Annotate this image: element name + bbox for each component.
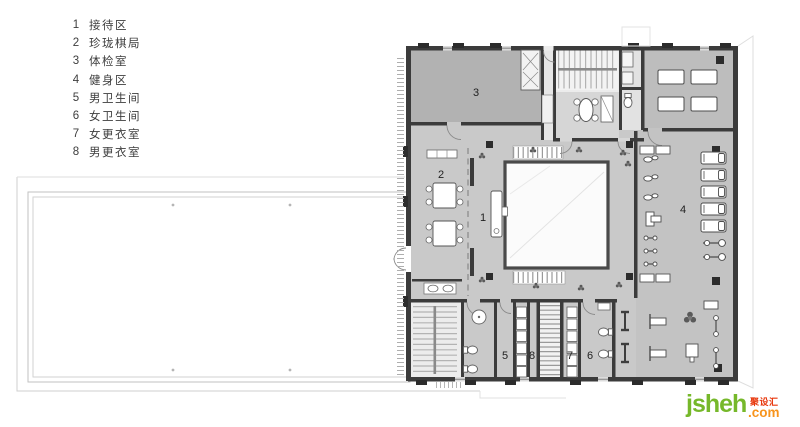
column [626, 273, 633, 280]
wall-gym-west [634, 131, 638, 298]
fixture [622, 52, 633, 67]
treadmill-icon [701, 186, 726, 198]
table [433, 183, 456, 208]
floor-plan-drawing: 3 2 1 4 5 8 7 6 [0, 0, 800, 427]
sink-icon [443, 285, 453, 292]
door-gap [648, 128, 662, 132]
watermark-logo: jsheh 聚设汇 .com [686, 394, 794, 424]
locker-icon [567, 307, 577, 318]
room-label-4: 4 [680, 204, 686, 216]
chair-icon [426, 237, 432, 243]
door-gap [447, 122, 461, 126]
pilaster [718, 380, 729, 385]
toilet-icon [599, 328, 613, 336]
bench [691, 70, 717, 84]
terrace-marker [172, 369, 175, 372]
door-gap [560, 138, 572, 142]
pilaster [685, 380, 696, 385]
toilet-icon [624, 94, 632, 108]
bench [640, 274, 654, 282]
closet [521, 50, 540, 90]
atrium [505, 146, 608, 284]
vanity-counter [598, 303, 610, 310]
stair-rail [558, 68, 617, 71]
column [716, 56, 724, 64]
door-gap [467, 299, 480, 303]
pilaster [570, 380, 581, 385]
fixture [622, 72, 633, 84]
multigym-icon [651, 216, 661, 222]
bench [658, 70, 684, 84]
room-label-1: 1 [480, 212, 486, 224]
machine-icon [704, 301, 718, 309]
reception-desk [491, 191, 502, 237]
locker-bank-floor [538, 302, 562, 378]
pilaster [465, 380, 476, 385]
wall-service-mid [619, 87, 644, 90]
lounge-table-group [574, 96, 613, 122]
terrace-marker [289, 204, 292, 207]
chair-icon [592, 99, 598, 105]
wall-fin-north [470, 158, 474, 186]
locker-icon [567, 331, 577, 342]
chair-icon [426, 224, 432, 230]
pilaster [505, 380, 516, 385]
chair-icon [457, 237, 463, 243]
staircase-top [556, 49, 618, 90]
pilaster [720, 43, 731, 48]
treadmill-icon [701, 203, 726, 215]
floor-plan-page: 1接待区 2珍珑棋局 3体检室 4健身区 5男卫生间 6女卫生间 7女更衣室 8… [0, 0, 800, 427]
wall-stair-west [553, 46, 556, 140]
wall-washroom-east [494, 299, 497, 381]
vestibule-niche [542, 95, 553, 123]
pilaster [632, 380, 643, 385]
pilaster [490, 43, 501, 48]
wall-room7-east [578, 299, 581, 381]
wall-room8-east [527, 299, 530, 381]
door-gap [631, 110, 634, 122]
column [712, 277, 720, 285]
stair-rail [434, 306, 437, 374]
chair-icon [426, 199, 432, 205]
bench [656, 146, 670, 154]
brand-text: jsheh [686, 390, 746, 419]
room-label-7: 7 [567, 350, 573, 362]
room-label-8: 8 [529, 350, 535, 362]
chair-icon [574, 115, 580, 121]
door-gap [583, 299, 595, 303]
entrance-gap [544, 46, 554, 51]
wall-right [733, 46, 738, 381]
desk-return [502, 207, 508, 216]
pilaster [416, 380, 427, 385]
projection-line [738, 36, 753, 388]
room-label-6: 6 [587, 350, 593, 362]
locker-icon [567, 319, 577, 330]
locker-icon [517, 367, 527, 378]
sink-icon [428, 285, 438, 292]
brand-tld-text: .com [748, 405, 780, 420]
locker-icon [517, 319, 527, 330]
column [626, 141, 633, 148]
pilaster [418, 43, 429, 48]
table [433, 221, 456, 246]
sideboard [427, 150, 457, 158]
bench [691, 97, 717, 111]
staircase-bottom-left [434, 306, 437, 374]
column [486, 273, 493, 280]
wall-room3-south [408, 122, 543, 126]
pilaster [403, 196, 408, 207]
treadmill-icon [701, 152, 726, 164]
locker-icon [567, 367, 577, 378]
wall-lockerbank-east [560, 299, 564, 381]
bench [656, 274, 670, 282]
wall-left [406, 46, 411, 381]
wall-room6-east [612, 299, 616, 381]
treadmill-icon [701, 220, 726, 232]
wall-fin-south [470, 248, 474, 276]
chair-icon [426, 186, 432, 192]
wall-lockerbank-west [537, 299, 541, 381]
chair-icon [457, 224, 463, 230]
pilaster [453, 43, 464, 48]
round-table [579, 99, 593, 122]
locker-icon [517, 343, 527, 354]
pilaster [403, 146, 408, 157]
bench [640, 146, 654, 154]
terrace-inner [33, 197, 407, 377]
shower-drain [478, 316, 480, 318]
room3-closet [521, 50, 540, 90]
wall-room5-east [513, 299, 516, 381]
locker-icon [517, 307, 527, 318]
room-label-5: 5 [502, 350, 508, 362]
toilet-icon [599, 350, 613, 358]
toilet-icon [464, 346, 478, 354]
pilaster [662, 43, 673, 48]
wall-washcounter [412, 279, 462, 282]
treadmill-icon [701, 169, 726, 181]
bench [658, 97, 684, 111]
chair-icon [592, 115, 598, 121]
terrace-marker [172, 204, 175, 207]
chair-icon [574, 99, 580, 105]
column [486, 141, 493, 148]
door-gap [618, 138, 630, 142]
room-label-2: 2 [438, 169, 444, 181]
terrace-marker [289, 369, 292, 372]
wall-room3-east [541, 46, 544, 140]
chair-icon [457, 199, 463, 205]
locker-icon [517, 331, 527, 342]
locker-icon [517, 355, 527, 366]
pilaster [403, 296, 408, 307]
chair-icon [457, 186, 463, 192]
toilet-icon [464, 365, 478, 373]
room-label-3: 3 [473, 87, 479, 99]
door-gap [500, 299, 511, 303]
site-outline-step [480, 391, 566, 398]
